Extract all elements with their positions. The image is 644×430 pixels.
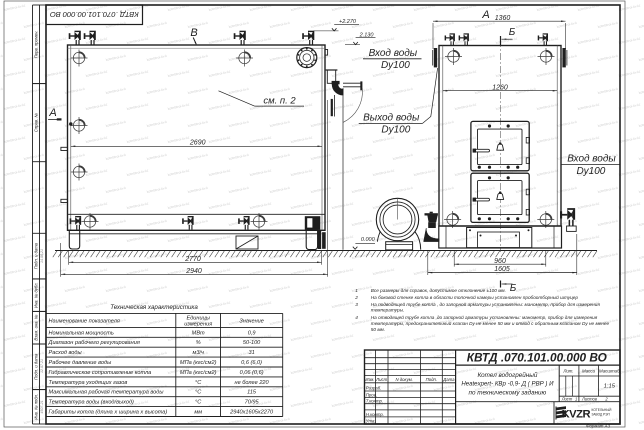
svg-text:Лист: Лист bbox=[375, 377, 387, 382]
svg-text:°С: °С bbox=[195, 380, 202, 386]
svg-text:А: А bbox=[48, 107, 56, 119]
svg-text:1360: 1360 bbox=[495, 15, 511, 22]
svg-text:N докум.: N докум. bbox=[396, 377, 413, 382]
svg-text:Н.контр.: Н.контр. bbox=[366, 412, 384, 417]
svg-text:Масса: Масса bbox=[582, 369, 596, 374]
svg-text:Котел водогрейный: Котел водогрейный bbox=[477, 371, 537, 379]
svg-text:4507-21: 4507-21 bbox=[40, 400, 44, 413]
svg-text:Т.контр.: Т.контр. bbox=[366, 399, 383, 404]
svg-text:Пров.: Пров. bbox=[366, 392, 377, 397]
svg-text:1: 1 bbox=[355, 288, 358, 293]
svg-text:Формат А3: Формат А3 bbox=[586, 424, 611, 429]
svg-text:Выход воды: Выход воды bbox=[363, 113, 420, 124]
svg-text:не более 220: не более 220 bbox=[235, 380, 270, 386]
svg-text:Лит.: Лит. bbox=[562, 369, 573, 374]
svg-text:1260: 1260 bbox=[492, 84, 508, 91]
svg-text:14.06.21: 14.06.21 bbox=[40, 249, 44, 263]
svg-text:Перв. примен.: Перв. примен. bbox=[33, 30, 38, 58]
svg-text:1605: 1605 bbox=[494, 266, 510, 273]
svg-text:МВт: МВт bbox=[192, 330, 205, 336]
svg-text:Б: Б bbox=[510, 283, 517, 294]
svg-text:Дата: Дата bbox=[442, 377, 455, 382]
svg-text:КОТЕЛЬНЫЙ: КОТЕЛЬНЫЙ bbox=[592, 408, 613, 412]
svg-text:Наименование показателя: Наименование показателя bbox=[49, 319, 120, 325]
svg-text:Техническая характеристика: Техническая характеристика bbox=[110, 304, 198, 311]
svg-text:Листов: Листов bbox=[581, 397, 598, 402]
svg-text:°С: °С bbox=[195, 390, 202, 396]
svg-text:Все размеры для справок, допус: Все размеры для справок, допустимое откл… bbox=[371, 288, 506, 293]
svg-text:В: В bbox=[190, 27, 197, 39]
svg-text:Гидравлическое сопротивление к: Гидравлическое сопротивление котла bbox=[49, 370, 152, 376]
svg-text:2690: 2690 bbox=[189, 140, 206, 147]
svg-text:3: 3 bbox=[355, 302, 358, 307]
svg-text:Справ. №: Справ. № bbox=[33, 113, 38, 132]
svg-text:А: А bbox=[481, 9, 489, 21]
svg-text:4: 4 bbox=[355, 315, 358, 320]
svg-text:МПа (кгс/см2): МПа (кгс/см2) bbox=[180, 370, 217, 376]
svg-text:Dy100: Dy100 bbox=[381, 60, 410, 71]
svg-text:измерения: измерения bbox=[184, 321, 212, 327]
svg-text:Рабочее давление воды: Рабочее давление воды bbox=[49, 360, 112, 366]
svg-text:50-100: 50-100 bbox=[243, 340, 261, 346]
svg-text:2940: 2940 bbox=[185, 268, 202, 275]
svg-text:На отводящей трубе котла ,до з: На отводящей трубе котла ,до запорной ар… bbox=[371, 314, 598, 320]
svg-text:31: 31 bbox=[248, 350, 254, 356]
svg-text:1: 1 bbox=[575, 397, 577, 402]
svg-text:м3/ч: м3/ч bbox=[192, 350, 203, 356]
svg-text:мм: мм bbox=[194, 410, 202, 416]
svg-text:Диапазон рабочего регулировани: Диапазон рабочего регулирования bbox=[48, 340, 140, 346]
svg-text:температуры.: температуры. bbox=[371, 308, 405, 313]
svg-text:KVZR: KVZR bbox=[562, 408, 591, 420]
svg-text:°С: °С bbox=[195, 400, 202, 406]
svg-text:2770: 2770 bbox=[184, 256, 201, 263]
svg-text:КВТД .070.101.00.000 ВО: КВТД .070.101.00.000 ВО bbox=[467, 351, 607, 365]
svg-text:%: % bbox=[196, 340, 201, 346]
svg-text:МПа (кгс/см2): МПа (кгс/см2) bbox=[180, 360, 217, 366]
svg-text:1:15: 1:15 bbox=[604, 384, 616, 390]
svg-text:Масштаб: Масштаб bbox=[599, 369, 620, 374]
svg-text:Изм.: Изм. bbox=[365, 377, 374, 382]
svg-text:Dy100: Dy100 bbox=[381, 124, 410, 135]
svg-text:0.000: 0.000 bbox=[361, 237, 376, 243]
svg-text:На боковой стенке котла в обла: На боковой стенке котла в области топочн… bbox=[371, 294, 579, 300]
svg-text:Подп. и дата: Подп. и дата bbox=[33, 353, 38, 380]
svg-text:Инв. № дубл.: Инв. № дубл. bbox=[33, 282, 38, 308]
svg-text:температуры, предохранительный: температуры, предохранительный клапан Dу… bbox=[371, 320, 610, 326]
svg-text:ЗАВОД РЭП: ЗАВОД РЭП bbox=[592, 413, 611, 417]
svg-text:960: 960 bbox=[494, 258, 506, 265]
svg-text:Лист: Лист bbox=[561, 397, 573, 402]
svg-text:Инв. № подл.: Инв. № подл. bbox=[33, 394, 38, 420]
svg-text:Значение: Значение bbox=[239, 319, 264, 325]
svg-text:50 мм.: 50 мм. bbox=[371, 327, 385, 332]
svg-text:Dy100: Dy100 bbox=[576, 166, 605, 177]
svg-text:Б: Б bbox=[509, 27, 516, 38]
svg-text:Температура воды (вход/выход): Температура воды (вход/выход) bbox=[49, 400, 135, 406]
svg-text:Габариты котла (длина х ширина: Габариты котла (длина х ширина х высота) bbox=[49, 410, 168, 416]
svg-text:по техническому заданию: по техническому заданию bbox=[468, 388, 546, 396]
svg-text:Расход воды: Расход воды bbox=[49, 350, 82, 356]
svg-text:На подводящей трубе котла ,: На подводящей трубе котла , до запорной … bbox=[371, 301, 601, 307]
svg-text:Температура уходящих газов: Температура уходящих газов bbox=[49, 380, 128, 386]
svg-text:Подп. и дата: Подп. и дата bbox=[33, 242, 38, 269]
svg-text:см. п. 2: см. п. 2 bbox=[263, 96, 296, 107]
svg-text:Взам. инв. №: Взам. инв. № bbox=[33, 314, 38, 340]
svg-text:Вход воды: Вход воды bbox=[369, 48, 418, 59]
svg-text:0,9: 0,9 bbox=[248, 330, 256, 336]
svg-text:12.07.21: 12.07.21 bbox=[40, 359, 44, 373]
svg-text:0,6 (6,0): 0,6 (6,0) bbox=[241, 360, 262, 366]
svg-text:Номинальная мощность: Номинальная мощность bbox=[49, 330, 114, 336]
svg-text:КВТД .070.101.00.000 ВО: КВТД .070.101.00.000 ВО bbox=[50, 10, 139, 19]
svg-text:2940х1605х2270: 2940х1605х2270 bbox=[229, 410, 274, 416]
svg-text:Подп.: Подп. bbox=[426, 377, 437, 382]
svg-text:Максимальная рабочая температу: Максимальная рабочая температура воды bbox=[49, 390, 164, 396]
svg-text:Heatexpert- КВр -0,9- Д ( РВР: Heatexpert- КВр -0,9- Д ( РВР ) И bbox=[461, 381, 554, 388]
svg-text:Утв.: Утв. bbox=[366, 418, 376, 423]
svg-text:0,06 (0,6): 0,06 (0,6) bbox=[240, 370, 264, 376]
svg-text:115: 115 bbox=[247, 390, 257, 396]
svg-text:Вход воды: Вход воды bbox=[567, 154, 616, 165]
svg-text:2: 2 bbox=[354, 295, 358, 300]
svg-text:Разраб.: Разраб. bbox=[366, 386, 382, 391]
svg-text:70/95: 70/95 bbox=[245, 400, 260, 406]
